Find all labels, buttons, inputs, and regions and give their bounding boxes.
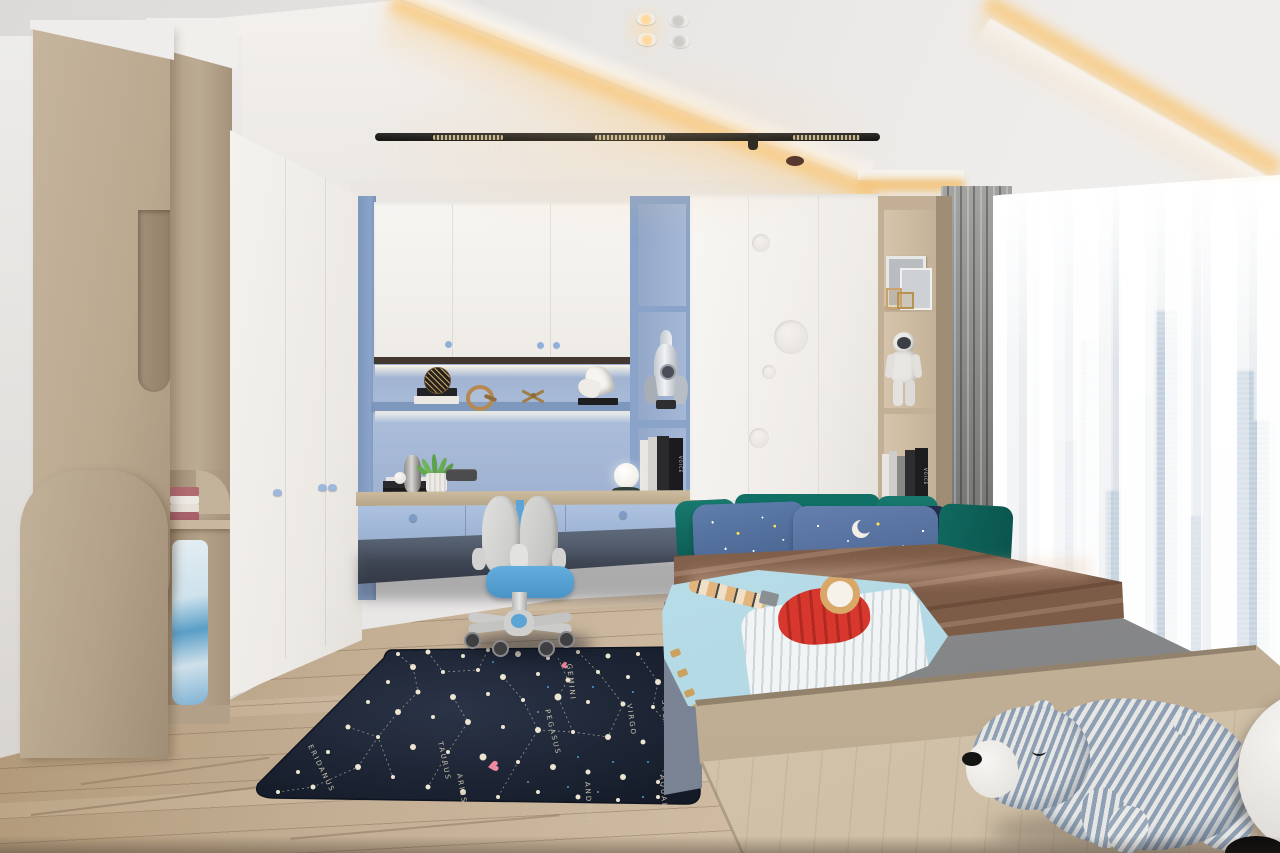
bear-rear-leg <box>1187 780 1263 853</box>
rug-star <box>676 735 680 739</box>
floor-seam <box>290 814 559 840</box>
rug-star <box>621 702 626 707</box>
constellation-line <box>498 677 538 797</box>
rug-star <box>426 650 431 655</box>
white-ball-decor <box>394 472 406 484</box>
metal-vase <box>404 455 421 492</box>
wood-shelf-unit <box>878 196 952 510</box>
track-spotlight-head <box>748 135 758 150</box>
star-pillow-right <box>793 506 938 564</box>
cove-soffit-right <box>975 18 1280 215</box>
led-segment <box>433 135 503 140</box>
rug-star <box>441 670 445 674</box>
rug-star <box>395 709 401 715</box>
city-skyline <box>1048 300 1280 710</box>
rug-star <box>516 760 520 764</box>
rug-label: VIRGO <box>625 703 637 736</box>
rug-star <box>431 715 435 719</box>
rug-star <box>410 664 416 670</box>
column-books: VOICE <box>640 436 686 492</box>
rug-speckle <box>537 711 539 713</box>
cabinet-knob[interactable] <box>553 342 560 349</box>
bear-shadow <box>990 812 1250 850</box>
platform-face <box>0 0 1280 853</box>
constellation-line <box>638 654 678 782</box>
chair-caster <box>464 632 481 649</box>
constellation-rug: ♥♥ GEMINISCORPIOVIRGOPEGASUSTAURUSARIESE… <box>238 642 708 820</box>
magnifier-handle <box>484 394 498 403</box>
constellation-line <box>428 697 468 787</box>
rounded-wood-panel <box>20 470 168 758</box>
rug-star <box>521 698 525 702</box>
cove-glow-left <box>386 0 879 207</box>
teal-pillow-left <box>674 498 738 563</box>
rug-speckle <box>612 761 614 763</box>
rug-star <box>651 705 655 709</box>
rug-star <box>656 795 660 799</box>
drawer-knob[interactable] <box>409 514 417 522</box>
cove-glow-right-halo <box>965 0 1280 214</box>
bed-mattress <box>0 0 1280 853</box>
left-wardrobe <box>228 118 364 700</box>
rug-star <box>641 740 646 745</box>
rug-speckle <box>492 661 494 663</box>
rug-star <box>486 692 490 696</box>
circle-wardrobe <box>690 194 880 500</box>
black-corner-piece <box>1225 836 1280 853</box>
rug-speckle <box>547 686 549 688</box>
niche-curved-divider <box>196 470 230 514</box>
rug-star <box>605 734 611 740</box>
recessed-downlight <box>786 156 804 166</box>
rug-star <box>416 690 421 695</box>
constellation-line <box>668 660 683 702</box>
sheer-curtain-window[interactable] <box>993 150 1280 853</box>
curtain-folds <box>993 150 1280 853</box>
rug-speckle <box>592 686 594 688</box>
rug-star <box>571 730 575 734</box>
constellation-line <box>558 658 573 732</box>
bear-head <box>969 702 1094 814</box>
pole-tip-print <box>759 590 780 607</box>
track-light-rail <box>375 133 880 141</box>
rug-star <box>465 719 471 725</box>
rocket-model <box>642 330 690 412</box>
rug-star <box>576 795 581 800</box>
constellation-line <box>538 730 608 737</box>
rug-star <box>555 694 562 701</box>
rug-speckle <box>642 796 644 798</box>
rug-star <box>391 775 395 779</box>
brown-blanket <box>0 0 1280 853</box>
bear-closed-eye <box>1032 746 1046 756</box>
rug-star <box>426 785 431 790</box>
constellation-line <box>278 654 418 792</box>
plant-pot <box>426 473 447 492</box>
rug-star <box>366 700 370 704</box>
chair-seat <box>486 566 574 598</box>
rug-speckle <box>597 791 599 793</box>
wall-shelf <box>373 402 632 411</box>
heart-icon: ♥ <box>483 759 501 774</box>
city-building <box>1236 370 1254 710</box>
rug-speckle <box>632 691 634 693</box>
rocket-print-pleats <box>776 584 873 648</box>
rug-star <box>586 700 590 704</box>
lattice-sphere-ornament <box>424 367 451 394</box>
rug-star <box>326 750 330 754</box>
far-wall-glow <box>858 179 964 191</box>
chair-caster <box>558 631 575 648</box>
cabinet-knob[interactable] <box>445 341 452 348</box>
bear-nose <box>962 752 982 766</box>
chair-caster <box>492 640 509 657</box>
mattress-edge-shadow <box>0 0 1280 853</box>
platform-left-edge <box>0 0 1280 853</box>
navy-star-pillow <box>906 506 946 560</box>
chair-armrest <box>472 548 486 570</box>
blanket-stripe-patch <box>739 586 931 712</box>
globe-lamp-base <box>612 487 640 496</box>
rug-star <box>626 675 630 679</box>
shelf-book-stack <box>414 388 459 404</box>
power-strip <box>446 469 477 481</box>
rug-star <box>535 727 541 733</box>
platform-face-shadow <box>0 0 1280 853</box>
floor-seam <box>31 786 260 816</box>
spotlight-warm-2 <box>637 33 657 46</box>
rug-star <box>566 678 571 683</box>
rug-star <box>446 750 450 754</box>
bear-ear <box>1032 700 1054 720</box>
rocket-window <box>660 364 676 380</box>
cloud-knob[interactable] <box>318 484 327 491</box>
rug-star <box>461 654 465 658</box>
pillow-moon-icon <box>852 520 870 538</box>
rug-star <box>656 780 660 784</box>
wall-wedge-a <box>30 20 174 60</box>
rug-star <box>681 700 685 704</box>
curtain-top-wash <box>993 150 1280 853</box>
city-building <box>1056 440 1076 710</box>
rug-label: GEMINI <box>565 663 577 701</box>
column-niche-bottom <box>638 428 686 492</box>
rug-star <box>606 654 611 659</box>
drawer-knob[interactable] <box>619 511 627 519</box>
spotlight-warm-1 <box>636 13 656 25</box>
led-segment <box>793 135 860 140</box>
rug-star <box>501 725 505 729</box>
cove-glow-right <box>980 0 1280 179</box>
rug-star <box>346 725 351 730</box>
star-pillow-left <box>692 501 807 564</box>
rug-speckle <box>577 756 579 758</box>
rug-star <box>410 744 416 750</box>
bear-front-paw <box>1075 783 1135 853</box>
bottom-vignette <box>0 836 1280 853</box>
city-building <box>1082 340 1098 710</box>
rug-star <box>636 652 640 656</box>
rocket-fin-left <box>642 375 659 405</box>
scissors-ornament <box>521 388 545 404</box>
white-sphere-toy <box>1238 688 1280 853</box>
undercabinet-glow <box>375 365 630 378</box>
rocket-print-ring <box>820 574 860 614</box>
wall-wedge-b <box>146 18 238 70</box>
rug-star <box>496 795 500 799</box>
rug-star <box>616 798 620 802</box>
bear-plush <box>960 680 1280 853</box>
rug-star <box>311 785 316 790</box>
shell-sculpture <box>576 365 620 405</box>
slab-groove <box>138 210 170 392</box>
far-wall-soffit <box>858 170 964 180</box>
bed-side-panel <box>0 0 1280 853</box>
blue-column <box>630 196 692 498</box>
rug-star <box>480 754 487 761</box>
city-building <box>1254 420 1275 710</box>
chair-caster <box>538 640 555 657</box>
rug-star <box>655 679 661 685</box>
rug-star <box>386 680 390 684</box>
desk-niche-back <box>373 364 632 494</box>
rug-label: PEGASUS <box>543 709 562 756</box>
city-building <box>1188 515 1203 710</box>
rug-star <box>536 790 540 794</box>
rug-star <box>296 770 300 774</box>
study-chair[interactable] <box>460 492 580 652</box>
rug-speckle <box>647 761 649 763</box>
rug-star <box>355 764 361 770</box>
rug-star <box>536 672 540 676</box>
striped-pole-print <box>687 577 768 611</box>
rug-star <box>460 789 466 795</box>
rug-shape <box>257 647 700 804</box>
cabinet-knob[interactable] <box>537 342 544 349</box>
spotlight-off-1 <box>669 15 689 27</box>
city-building <box>1106 490 1128 710</box>
blanket-fringe <box>677 668 689 678</box>
rug-speckle <box>567 786 569 788</box>
switch-toggle-icon[interactable] <box>42 471 55 482</box>
rug-star <box>666 658 670 662</box>
rug-star <box>476 668 480 672</box>
column-niche-top <box>638 204 686 306</box>
desk-books <box>383 477 430 495</box>
rug-label: ANDROMEDA <box>583 782 595 820</box>
rug-label: TAURUS <box>436 740 452 782</box>
rug-star <box>586 770 591 775</box>
city-building <box>1210 450 1232 710</box>
rug-star <box>450 694 456 700</box>
constellation-line <box>578 652 623 737</box>
wood-slab-front <box>33 26 170 642</box>
rug-star <box>596 670 600 674</box>
city-building <box>1156 310 1182 710</box>
rocket-base <box>656 400 676 409</box>
magnifier-ornament <box>466 385 494 411</box>
book-spine: VOICE <box>669 438 683 492</box>
undershelf-glow <box>375 411 630 423</box>
blanket-fringe <box>670 648 682 658</box>
cloud-knob[interactable] <box>328 484 337 491</box>
bear-muzzle <box>961 736 1022 802</box>
kids-blanket <box>0 0 1280 853</box>
rug-star <box>500 674 506 680</box>
rug-speckle <box>677 771 679 773</box>
spotlight-halo <box>622 4 668 54</box>
plant-leaves <box>418 452 456 478</box>
constellation-line <box>348 727 393 777</box>
spotlight-off-2 <box>670 35 690 48</box>
bear-ear <box>1174 712 1200 736</box>
niche-bottom-board <box>168 705 230 724</box>
bear-body <box>1023 689 1262 853</box>
rug-star <box>620 774 626 780</box>
bear-front-paw <box>1104 803 1152 853</box>
blanket-sheen <box>690 559 1090 589</box>
rug-label: SCORPIO <box>660 700 671 746</box>
platform-top <box>0 0 1280 853</box>
globe-lamp[interactable] <box>614 463 639 488</box>
column-niche-mid <box>638 312 686 420</box>
led-segment <box>595 135 665 140</box>
upper-cabinets <box>374 202 632 362</box>
heart-icon: ♥ <box>557 661 568 671</box>
wood-floor <box>0 555 770 853</box>
rug-label: AQUARIUS <box>658 775 670 820</box>
rug-star <box>681 670 685 674</box>
rocket-body <box>654 344 678 396</box>
folded-towels <box>170 487 199 522</box>
rug-label: ERIDANUS <box>306 743 336 793</box>
hanging-clothes <box>172 540 208 705</box>
rug-speckle <box>527 781 529 783</box>
light-switch[interactable] <box>36 462 76 492</box>
bedroom-render: VOICE <box>0 0 1280 853</box>
rug-star <box>396 652 400 656</box>
teal-cushion-window <box>936 503 1013 574</box>
rocket-fin-right <box>673 375 690 405</box>
switch-toggle-icon[interactable] <box>57 471 71 482</box>
rug-star <box>276 790 280 794</box>
cove-soffit-left <box>388 0 877 183</box>
floor-seam <box>81 757 269 785</box>
rug-speckle <box>667 716 669 718</box>
blanket-fringe <box>684 688 696 698</box>
city-building <box>1132 395 1150 710</box>
rocket-nose <box>660 330 672 348</box>
rug-label: ARIES <box>455 773 468 805</box>
rug-star <box>550 764 556 770</box>
cloud-knob[interactable] <box>273 489 282 496</box>
constellation-line <box>428 650 488 672</box>
chair-hub <box>511 614 527 628</box>
rug-star <box>376 735 380 739</box>
blanket-fringe <box>692 702 704 712</box>
